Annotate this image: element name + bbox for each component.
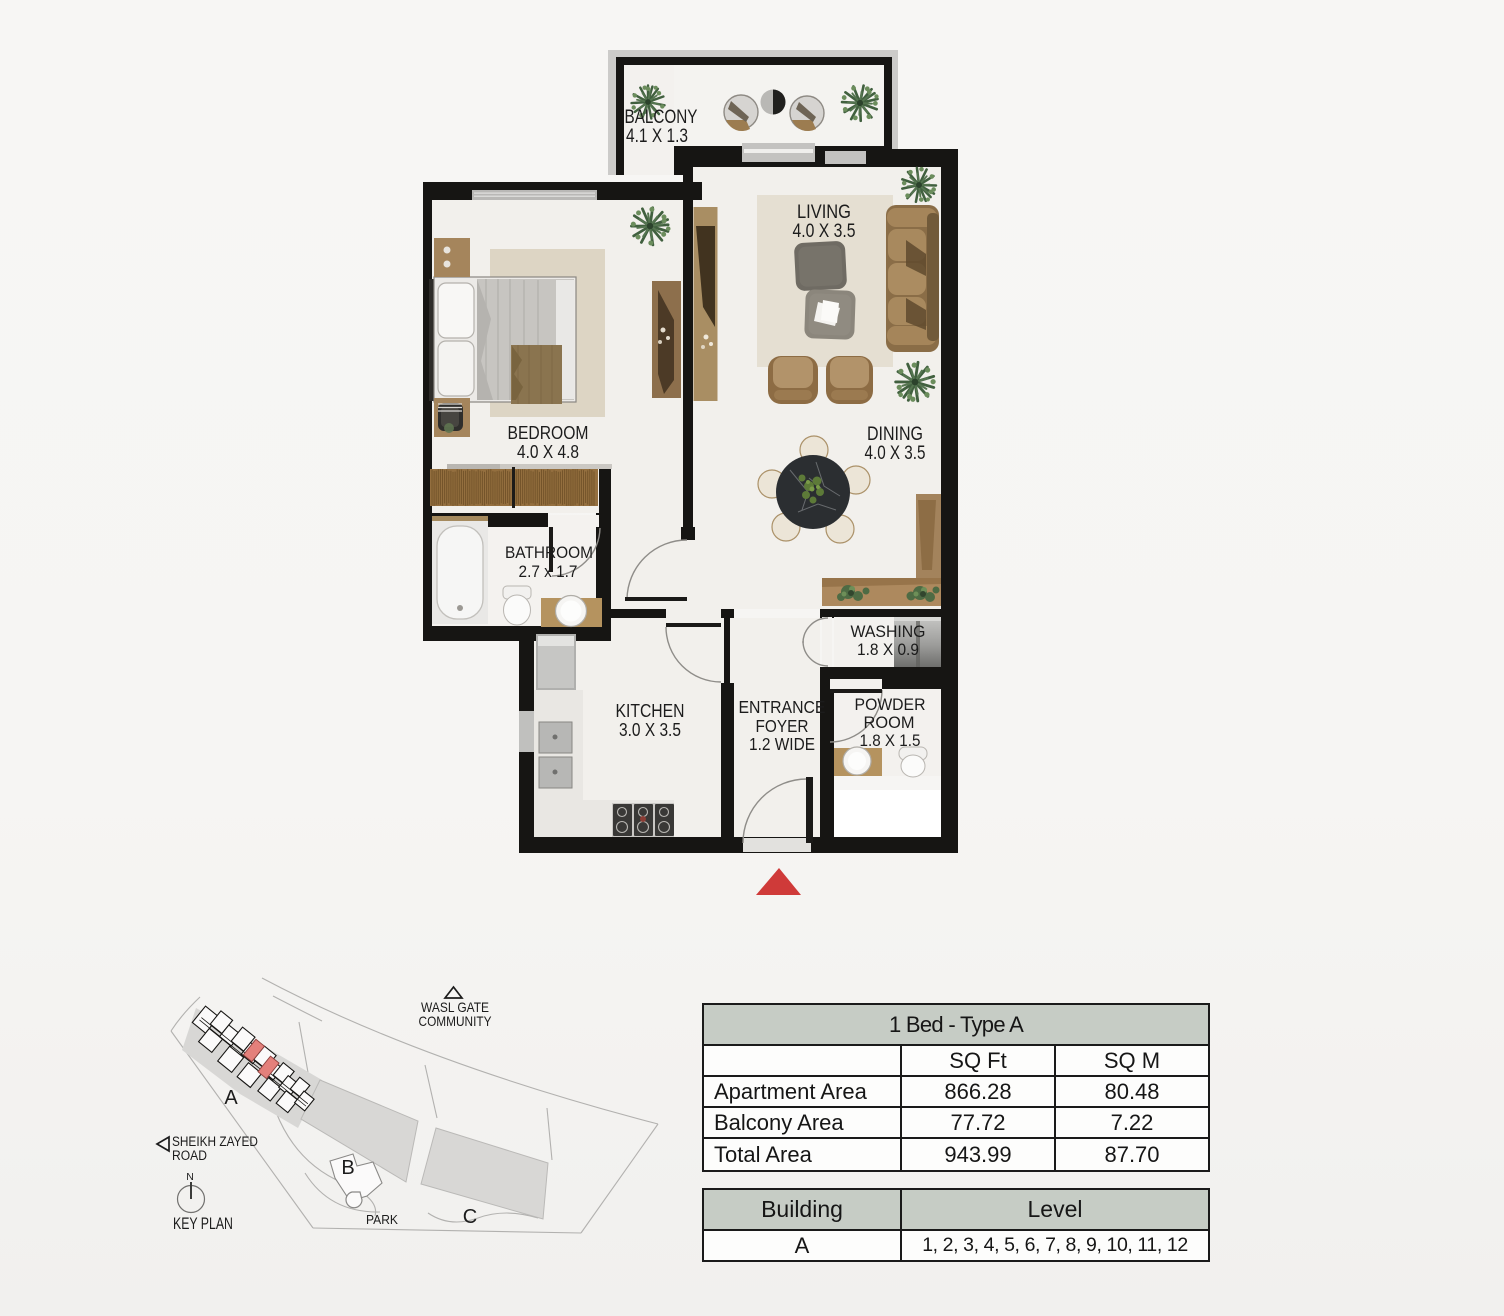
svg-text:POWDER: POWDER	[855, 695, 926, 714]
svg-text:BEDROOM: BEDROOM	[508, 422, 589, 444]
svg-text:1.8 X 0.9: 1.8 X 0.9	[857, 640, 919, 659]
svg-text:2.7 x 1.7: 2.7 x 1.7	[519, 564, 578, 582]
svg-text:3.0 X 3.5: 3.0 X 3.5	[619, 720, 681, 741]
svg-text:4.0 X 4.8: 4.0 X 4.8	[517, 442, 579, 463]
svg-text:ROAD: ROAD	[172, 1147, 207, 1163]
svg-text:PARK: PARK	[366, 1213, 399, 1227]
svg-text:1.2 WIDE: 1.2 WIDE	[749, 735, 815, 754]
svg-text:KEY PLAN: KEY PLAN	[173, 1215, 233, 1233]
svg-text:4.0 X 3.5: 4.0 X 3.5	[865, 441, 926, 463]
svg-text:FOYER: FOYER	[756, 717, 809, 736]
svg-text:ENTRANCE: ENTRANCE	[739, 697, 826, 717]
svg-text:C: C	[463, 1206, 477, 1228]
svg-text:B: B	[341, 1157, 354, 1179]
svg-text:BATHROOM: BATHROOM	[505, 545, 593, 563]
svg-text:ROOM: ROOM	[864, 713, 915, 732]
svg-text:A: A	[224, 1087, 238, 1109]
svg-text:WASHING: WASHING	[851, 623, 926, 642]
svg-text:N: N	[186, 1171, 194, 1183]
svg-text:KITCHEN: KITCHEN	[616, 700, 685, 722]
svg-text:COMMUNITY: COMMUNITY	[419, 1013, 492, 1029]
svg-text:4.0 X 3.5: 4.0 X 3.5	[793, 219, 856, 241]
svg-text:1.8 X 1.5: 1.8 X 1.5	[860, 731, 921, 750]
svg-text:4.1 X 1.3: 4.1 X 1.3	[626, 124, 688, 146]
